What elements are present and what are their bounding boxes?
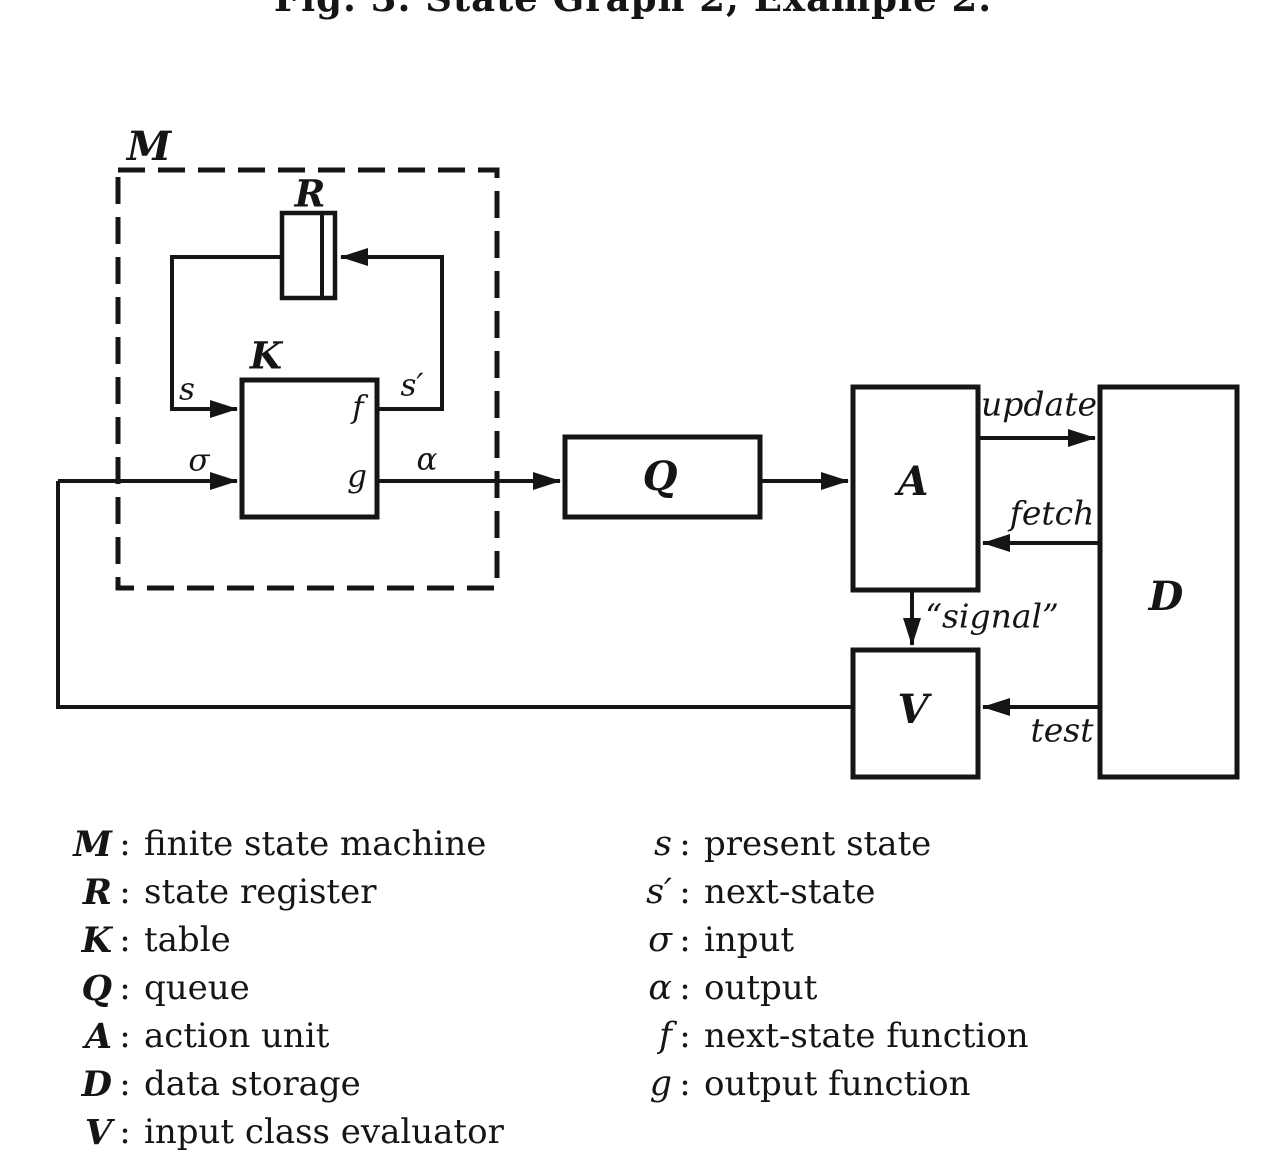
legend-colon: :: [112, 1112, 138, 1152]
legend-row-action-unit: A:action unit: [26, 1012, 504, 1060]
legend-symbol: g: [586, 1064, 672, 1104]
legend-colon: :: [112, 920, 138, 960]
legend-colon: :: [112, 824, 138, 864]
legend-desc: output function: [704, 1064, 971, 1104]
legend-symbol: f: [586, 1016, 672, 1056]
legend-row-table: K:table: [26, 916, 504, 964]
input-letter: σ: [188, 446, 209, 477]
output-function-letter: g: [347, 462, 367, 493]
legend-row-evaluator: V:input class evaluator: [26, 1108, 504, 1156]
legend-desc: input: [704, 920, 794, 960]
legend-symbol: s: [586, 824, 672, 864]
legend-colon: :: [112, 872, 138, 912]
legend-desc: state register: [144, 872, 376, 912]
present-state-letter: s: [179, 375, 195, 406]
legend-desc: next-state: [704, 872, 876, 912]
register-label: R: [295, 176, 326, 213]
output-letter: α: [417, 445, 438, 476]
legend-symbol: σ: [586, 920, 672, 960]
legend-row-fsm: M:finite state machine: [26, 820, 504, 868]
legend-colon: :: [672, 1064, 698, 1104]
legend-colon: :: [672, 824, 698, 864]
legend-symbol: M: [26, 824, 112, 865]
signal-label: “signal”: [925, 600, 1059, 633]
data-storage-label: D: [1149, 577, 1184, 617]
legend-symbol: V: [26, 1112, 112, 1153]
register-box: [282, 213, 335, 298]
evaluator-label: V: [897, 690, 928, 730]
legend-row-output: α:output: [586, 964, 1029, 1012]
legend-colon: :: [112, 1016, 138, 1056]
legend-symbol: s′: [586, 872, 672, 912]
legend-left-column: M:finite state machine R:state register …: [26, 820, 504, 1156]
fsm-label: M: [127, 127, 171, 167]
table-label: K: [250, 338, 282, 375]
legend-right-column: s:present state s′:next-state σ:input α:…: [586, 820, 1029, 1108]
legend-desc: next-state function: [704, 1016, 1029, 1056]
legend-desc: data storage: [144, 1064, 361, 1104]
legend-colon: :: [112, 1064, 138, 1104]
legend-desc: present state: [704, 824, 931, 864]
legend-desc: output: [704, 968, 817, 1008]
next-state-letter: s′: [401, 371, 424, 402]
test-label: test: [1031, 714, 1094, 747]
next-state-function-letter: f: [352, 393, 363, 424]
legend-symbol: D: [26, 1064, 112, 1105]
legend-desc: action unit: [144, 1016, 329, 1056]
legend-colon: :: [672, 920, 698, 960]
legend-row-next-state: s′:next-state: [586, 868, 1029, 916]
legend-row-register: R:state register: [26, 868, 504, 916]
queue-label: Q: [643, 457, 678, 497]
legend-row-output-function: g:output function: [586, 1060, 1029, 1108]
legend-colon: :: [672, 872, 698, 912]
legend-row-data-storage: D:data storage: [26, 1060, 504, 1108]
action-unit-label: A: [897, 462, 928, 502]
legend-symbol: K: [26, 920, 112, 961]
figure-page: Fig. 3. State Graph 2, Example 2.: [0, 0, 1266, 1173]
legend-colon: :: [672, 1016, 698, 1056]
legend-desc: queue: [144, 968, 250, 1008]
legend-symbol: Q: [26, 968, 112, 1009]
legend-colon: :: [672, 968, 698, 1008]
legend-row-present-state: s:present state: [586, 820, 1029, 868]
legend-row-next-state-function: f:next-state function: [586, 1012, 1029, 1060]
legend-desc: table: [144, 920, 231, 960]
legend-desc: input class evaluator: [144, 1112, 504, 1152]
legend-symbol: α: [586, 968, 672, 1008]
legend-symbol: A: [26, 1016, 112, 1057]
legend-colon: :: [112, 968, 138, 1008]
legend-desc: finite state machine: [144, 824, 486, 864]
legend-row-input: σ:input: [586, 916, 1029, 964]
update-label: update: [981, 388, 1097, 421]
legend-row-queue: Q:queue: [26, 964, 504, 1012]
fetch-label: fetch: [1010, 497, 1095, 530]
legend-symbol: R: [26, 872, 112, 913]
